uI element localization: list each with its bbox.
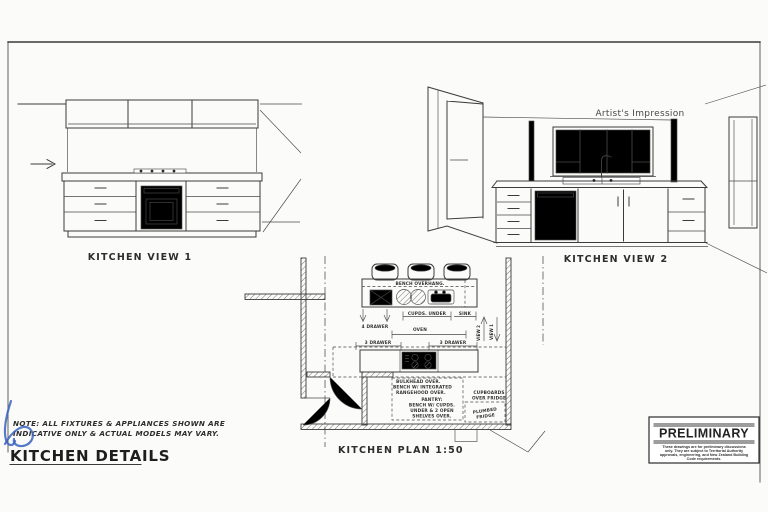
fridge-cavity (447, 101, 483, 219)
bulkhead-label: BULKHEAD OVER. (396, 379, 441, 385)
four-drawer-label: 4 DRAWER (362, 324, 389, 330)
door-swing-interior (330, 377, 362, 409)
fridge-label-1: CUPBOARDS (473, 390, 504, 396)
stamp-body-line-4: Code requirements. (687, 457, 722, 461)
oven-label: OVEN (413, 327, 427, 333)
rangehood-label-2: RANGEHOOD OVER. (396, 390, 446, 396)
kitchen-window (550, 127, 656, 177)
oven (136, 181, 186, 231)
note-block: NOTE: ALL FIXTURES & APPLIANCES SHOWN AR… (13, 419, 225, 438)
kitchen-plan: BENCH OVERHANG. 4 DRAWER CUPDS. UNDER (245, 256, 545, 456)
drainer-symbol (397, 290, 426, 305)
pantry-label-4: SHELVES OVER. (412, 414, 452, 420)
rangehood-label-1: BENCH W/ INTEGRATED (393, 385, 452, 391)
scanned-drawing-sheet: KITCHEN VIEW 1 (0, 0, 768, 512)
sheet-title-block: KITCHEN DETAILS (10, 447, 170, 465)
artists-impression-label: Artist's Impression (595, 109, 684, 119)
three-drawer-right-label: 3 DRAWER (440, 340, 467, 346)
cabinet-post-right (671, 119, 677, 182)
door-swing-corner (303, 398, 330, 425)
bench-overhang-label: BENCH OVERHANG. (395, 281, 444, 287)
kitchen-view-2-label: KITCHEN VIEW 2 (564, 254, 669, 265)
drawer-bank-right-v2 (668, 199, 705, 231)
drawer-bank-left (64, 188, 136, 221)
note-line-2: INDICATIVE ONLY & ACTUAL MODELS MAY VARY… (13, 429, 219, 438)
benchtop (62, 173, 262, 181)
preliminary-stamp: PRELIMINARY These drawings are for preli… (649, 417, 759, 463)
base-cabinets (64, 181, 260, 237)
cooktop (134, 169, 186, 173)
pantry-label-3: UNDER & 2 OPEN (410, 408, 454, 414)
upper-cabinets (66, 100, 258, 128)
sink-symbol (428, 290, 454, 304)
view1-arrow-label: VIEW 1 (489, 324, 494, 340)
drawer-bank-right (186, 188, 260, 221)
right-wall-window (729, 117, 757, 228)
dim-row-island: 4 DRAWER CUPDS. UNDER SINK (360, 309, 476, 330)
note-line-1: NOTE: ALL FIXTURES & APPLIANCES SHOWN AR… (13, 419, 225, 428)
view2-arrow-label: VIEW 2 (476, 325, 481, 341)
plan-view-arrows: VIEW 2 VIEW 1 (476, 317, 500, 341)
pantry-label-2: BENCH W/ CUPDS. (409, 403, 455, 409)
plan-pantry: BULKHEAD OVER. BENCH W/ INTEGRATED RANGE… (392, 378, 463, 420)
plan-island: BENCH OVERHANG. (362, 264, 477, 307)
drawing-sheet-svg: KITCHEN VIEW 1 (0, 0, 768, 512)
kitchen-plan-label: KITCHEN PLAN 1:50 (338, 445, 464, 456)
kitchen-view-1-label: KITCHEN VIEW 1 (88, 252, 193, 263)
drawer-bank-4 (497, 189, 531, 242)
kitchen-view-2: Artist's Impression KITCHEN VIEW 2 (428, 85, 767, 273)
cabinet-post-left (529, 121, 534, 181)
fridge-label-2: OVER FRIDGE (472, 396, 506, 402)
kitchen-view-1: KITCHEN VIEW 1 (18, 100, 302, 263)
stamp-title: PRELIMINARY (659, 427, 749, 441)
cabinet-doors (618, 189, 668, 242)
cupds-under-label: CUPDS. UNDER (408, 311, 447, 317)
sink-label: SINK (459, 311, 472, 317)
island-cabinets (494, 188, 708, 247)
plan-cooktop-bench (333, 347, 506, 377)
plan-fridge-space: CUPBOARDS OVER FRIDGE PLUMBED FRIDGE (465, 390, 506, 422)
sheet-title: KITCHEN DETAILS (10, 447, 170, 465)
three-drawer-left-label: 3 DRAWER (365, 340, 392, 346)
bar-stools (372, 264, 470, 280)
dim-row-bench: OVEN 3 DRAWER 3 DRAWER (356, 327, 477, 350)
pantry-label-1: PANTRY: (421, 397, 442, 403)
dishwasher (535, 189, 578, 242)
plan-walls (245, 258, 545, 452)
view-direction-arrow (31, 160, 55, 169)
dishwasher-symbol (370, 290, 392, 305)
